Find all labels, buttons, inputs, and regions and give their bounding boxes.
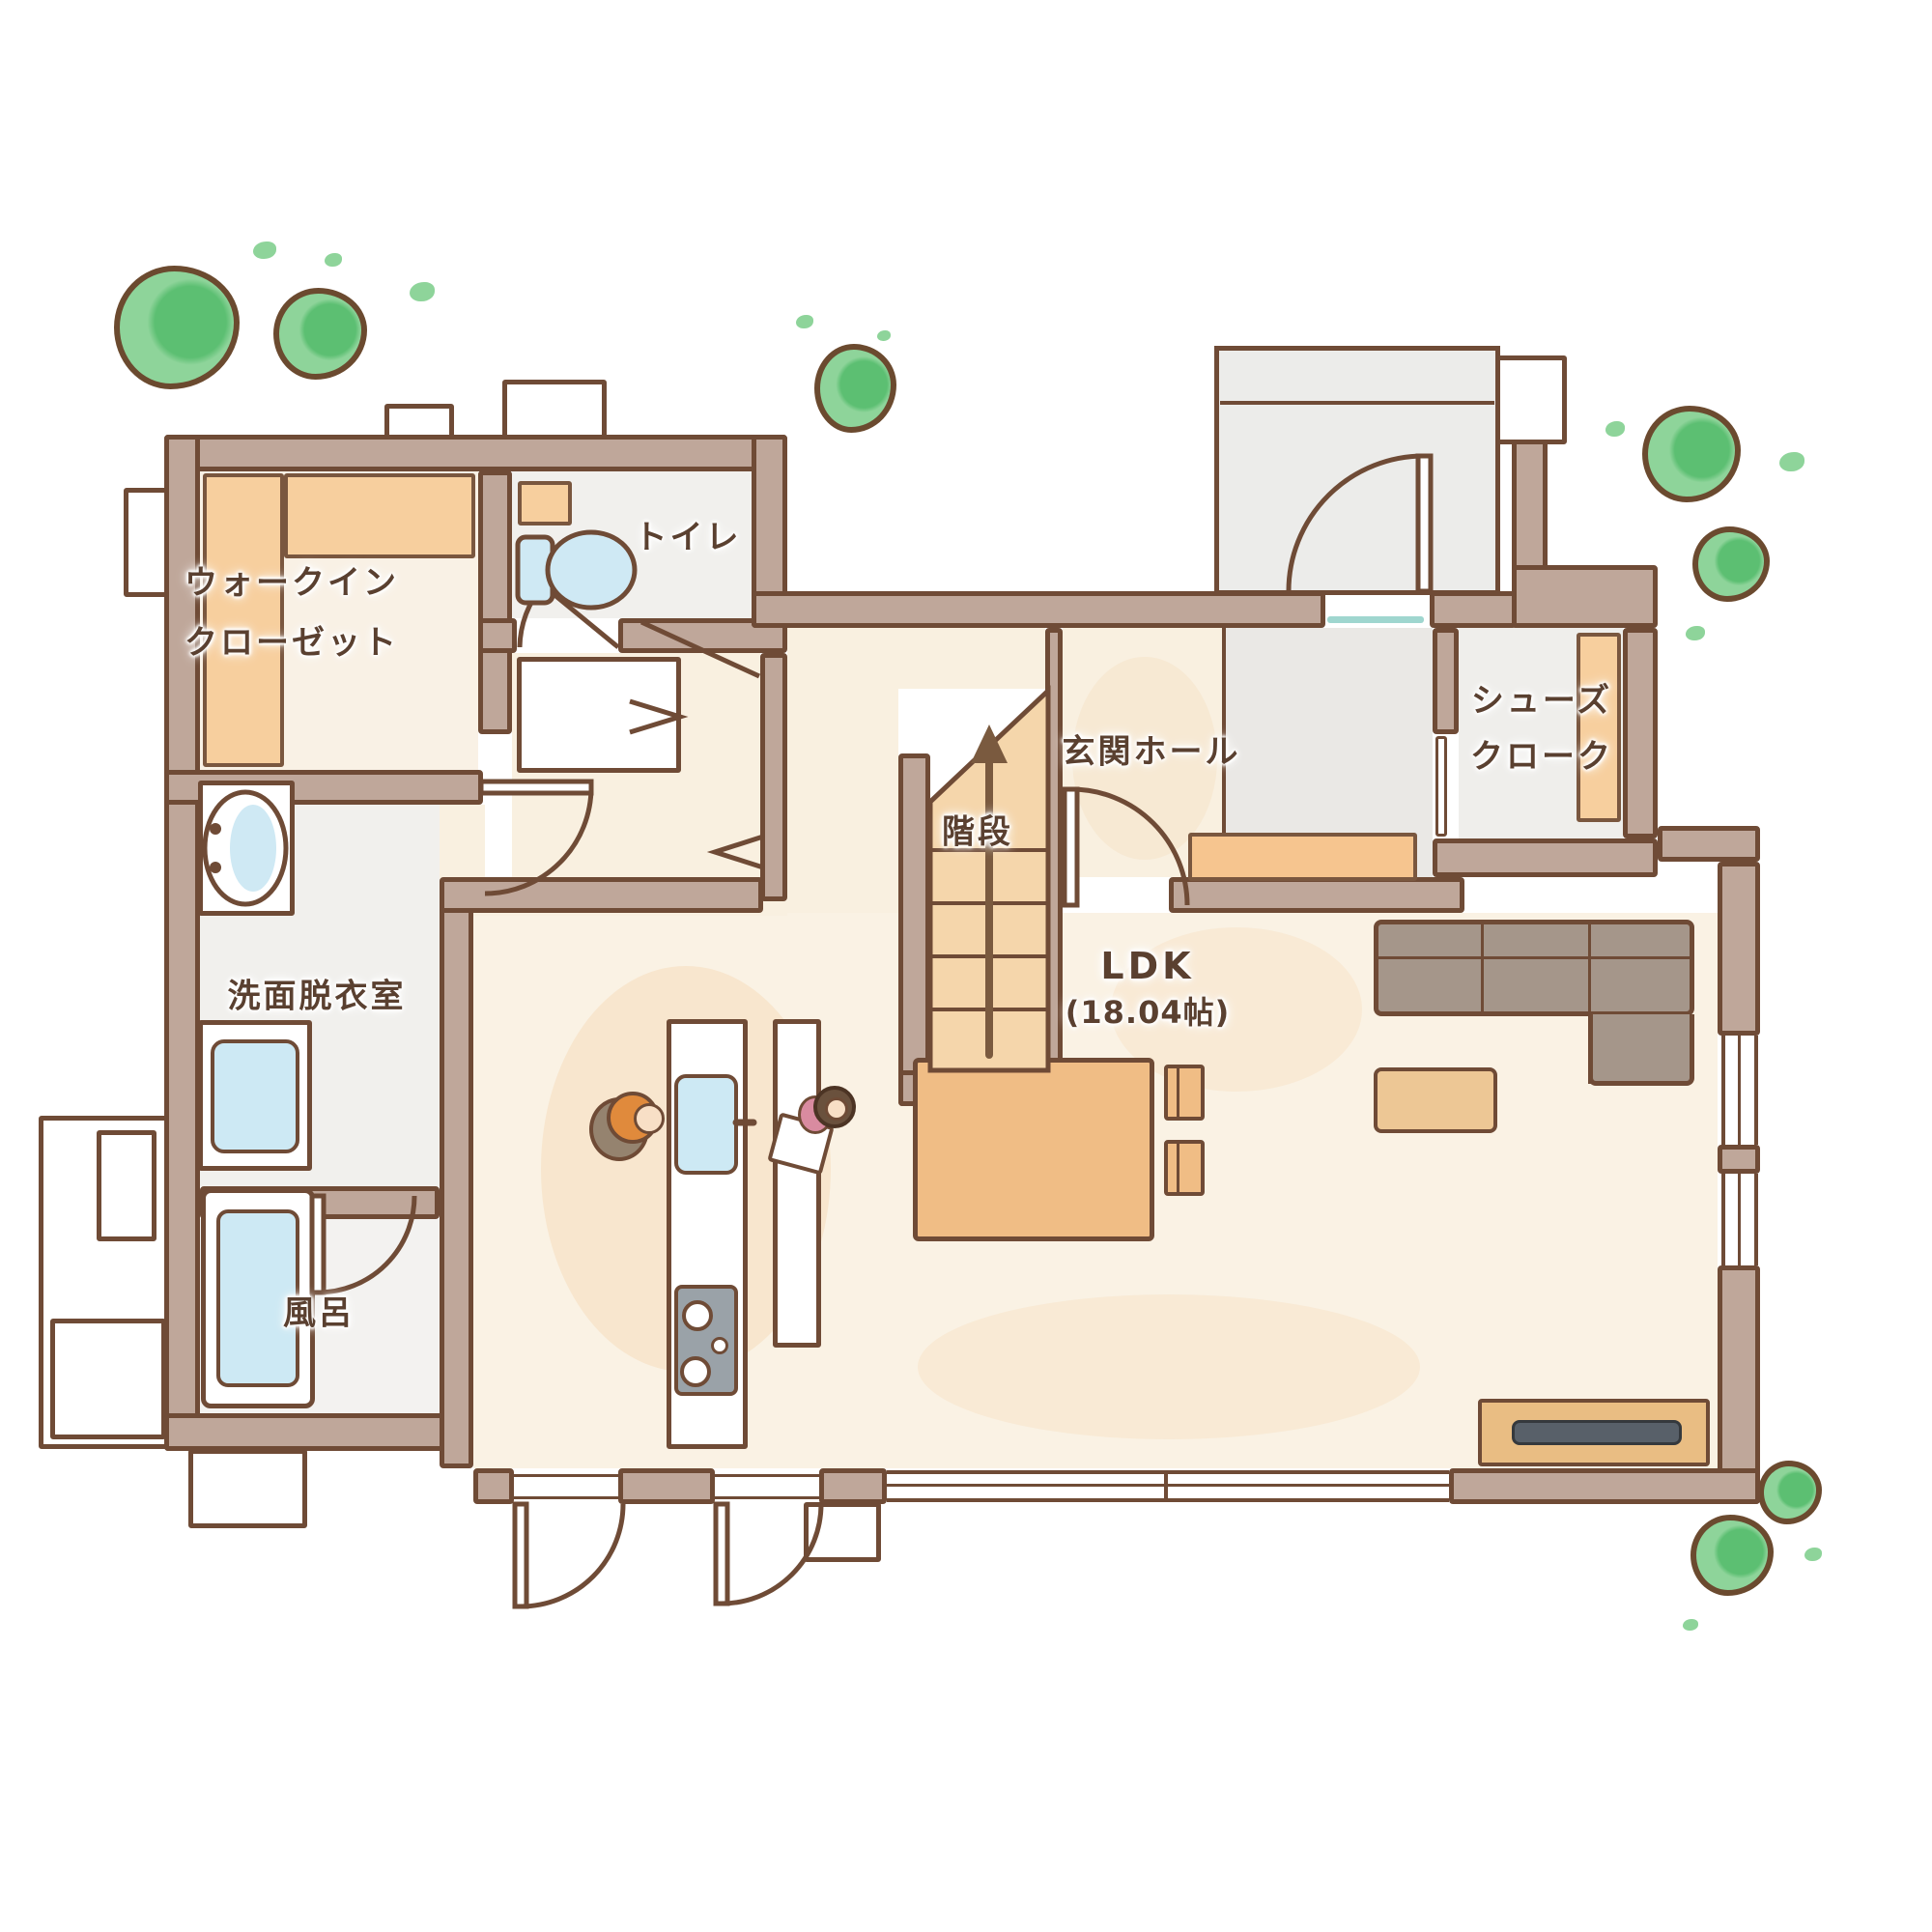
tree-icon	[1642, 406, 1741, 502]
tree-icon	[273, 288, 367, 380]
floor-plan: ウォークイン クローゼット トイレ 玄関ホール シューズ クローク 階段 洗面脱…	[0, 0, 1932, 1932]
label-washroom: 洗面脱衣室	[228, 970, 407, 1017]
leaf-icon	[1686, 626, 1705, 640]
sofa	[1374, 920, 1694, 1016]
exterior-step	[804, 1502, 881, 1562]
vanity-cabinet	[198, 781, 295, 916]
landing	[787, 628, 1045, 689]
label-toilet: トイレ	[635, 511, 742, 558]
sofa-chaise	[1588, 1014, 1694, 1086]
wall-segment	[1430, 591, 1517, 628]
person-parent-face	[634, 1103, 665, 1134]
leaf-icon	[1605, 421, 1625, 437]
wall-segment	[1433, 838, 1658, 877]
wall-segment	[752, 591, 1325, 628]
leaf-icon	[1683, 1619, 1698, 1631]
dining-chair	[1164, 1140, 1205, 1196]
label-shoe-cloak-2: クローク	[1470, 730, 1613, 778]
window-line	[1738, 1036, 1741, 1145]
closet-shelf	[284, 473, 475, 558]
wall-segment	[164, 1413, 473, 1451]
exterior-window-bump	[1492, 355, 1567, 444]
genkan-bench	[1188, 833, 1417, 881]
wall-segment	[1433, 628, 1459, 734]
leaf-icon	[796, 315, 813, 328]
terrace-door-arc	[521, 1504, 623, 1606]
tree-icon	[1692, 526, 1770, 602]
wall-segment	[473, 1468, 514, 1504]
label-stairs: 階段	[942, 806, 1013, 853]
kitchen-sink-icon	[674, 1074, 738, 1175]
wall-segment	[1169, 877, 1464, 913]
wall-segment	[440, 877, 763, 913]
leaf-icon	[1804, 1548, 1822, 1561]
wall-segment	[478, 470, 512, 734]
label-ldk: LDK	[1100, 945, 1194, 987]
wall-segment	[1658, 826, 1760, 862]
wall-segment	[1623, 628, 1658, 838]
person-child-face	[825, 1097, 848, 1121]
leaf-icon	[325, 253, 342, 267]
leaf-icon	[253, 241, 276, 259]
wall-segment	[1718, 1145, 1760, 1174]
stove-burner	[711, 1337, 728, 1354]
leaf-icon	[410, 282, 435, 301]
wall-segment	[1718, 862, 1760, 1036]
door-threshold	[715, 1474, 819, 1499]
kitchen-island-counter	[773, 1019, 821, 1348]
wall-segment	[164, 435, 787, 471]
sofa-line	[1588, 924, 1591, 1084]
exterior-step	[188, 1449, 307, 1528]
label-shoe-cloak-1: シューズ	[1471, 674, 1612, 722]
chair-line	[1177, 1066, 1179, 1119]
label-walk-in-closet-1: ウォークイン	[185, 556, 399, 604]
terrace-door-leaf	[716, 1504, 727, 1604]
sofa-line	[1481, 924, 1484, 1011]
wall-segment	[898, 753, 930, 1106]
label-entrance-hall: 玄関ホール	[1063, 725, 1241, 773]
wall-segment	[478, 618, 517, 653]
entrance-threshold-line	[1327, 616, 1424, 623]
wall-segment	[1449, 1468, 1760, 1504]
wall-segment	[760, 653, 787, 901]
terrace-door-leaf	[515, 1504, 526, 1606]
wall-segment	[618, 1468, 715, 1504]
wall-segment	[1512, 565, 1658, 628]
shoe-shelf	[1577, 633, 1621, 822]
stove-burner	[682, 1300, 713, 1331]
tree-icon	[1758, 1461, 1822, 1524]
label-walk-in-closet-2: クローゼット	[185, 616, 399, 664]
wall-segment	[440, 894, 473, 1468]
coffee-table	[1374, 1067, 1497, 1133]
window-line	[1738, 1174, 1741, 1265]
label-ldk-size: (18.04帖)	[1065, 988, 1230, 1033]
wall-segment	[1045, 628, 1063, 1106]
dining-table	[913, 1058, 1154, 1241]
tree-icon	[814, 344, 896, 433]
tree-icon	[114, 266, 240, 389]
leaf-icon	[877, 330, 891, 341]
entrance-porch	[1214, 346, 1500, 595]
label-bath: 風呂	[283, 1287, 355, 1334]
washing-machine-drum	[211, 1039, 299, 1153]
door-threshold	[514, 1474, 618, 1499]
toilet-shelf	[518, 481, 572, 526]
porch-step-line	[1220, 401, 1494, 405]
tree-icon	[1690, 1515, 1774, 1596]
exterior-unit	[50, 1319, 166, 1439]
window-line	[887, 1484, 1449, 1487]
exterior-unit	[97, 1130, 156, 1241]
shoe-cloak-door-leaf	[1435, 736, 1447, 837]
dining-chair	[1164, 1065, 1205, 1121]
wall-segment	[819, 1468, 887, 1504]
tv	[1512, 1420, 1682, 1445]
stove-burner	[680, 1356, 711, 1387]
chair-line	[1177, 1142, 1179, 1194]
sofa-line	[1378, 956, 1690, 959]
hall-closet	[517, 657, 681, 773]
floor-tint	[918, 1294, 1420, 1439]
window-line	[1164, 1472, 1168, 1500]
leaf-icon	[1779, 452, 1804, 471]
